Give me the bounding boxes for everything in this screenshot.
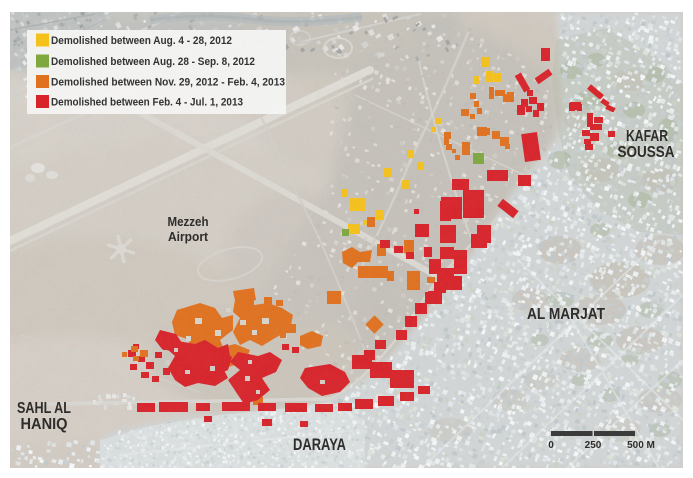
svg-text:SAHL AL: SAHL AL [17, 400, 71, 417]
svg-text:0: 0 [548, 440, 554, 451]
svg-text:Demolished between Aug. 4 - 28: Demolished between Aug. 4 - 28, 2012 [51, 35, 232, 47]
svg-text:Demolished between Nov. 29, 20: Demolished between Nov. 29, 2012 - Feb. … [51, 77, 285, 89]
svg-text:AL MARJAT: AL MARJAT [527, 306, 605, 323]
svg-text:SOUSSA: SOUSSA [618, 144, 675, 161]
svg-text:500 M: 500 M [627, 440, 655, 451]
svg-text:Mezzeh: Mezzeh [168, 214, 209, 229]
svg-text:HANIQ: HANIQ [21, 416, 68, 433]
svg-text:Demolished between Aug. 28 - S: Demolished between Aug. 28 - Sep. 8, 201… [51, 56, 255, 68]
svg-text:KAFAR: KAFAR [626, 128, 668, 145]
svg-text:Airport: Airport [168, 229, 209, 244]
svg-text:250: 250 [585, 440, 602, 451]
svg-text:Demolished between Feb. 4 - Ju: Demolished between Feb. 4 - Jul. 1, 2013 [51, 97, 243, 109]
svg-text:DARAYA: DARAYA [293, 435, 346, 454]
